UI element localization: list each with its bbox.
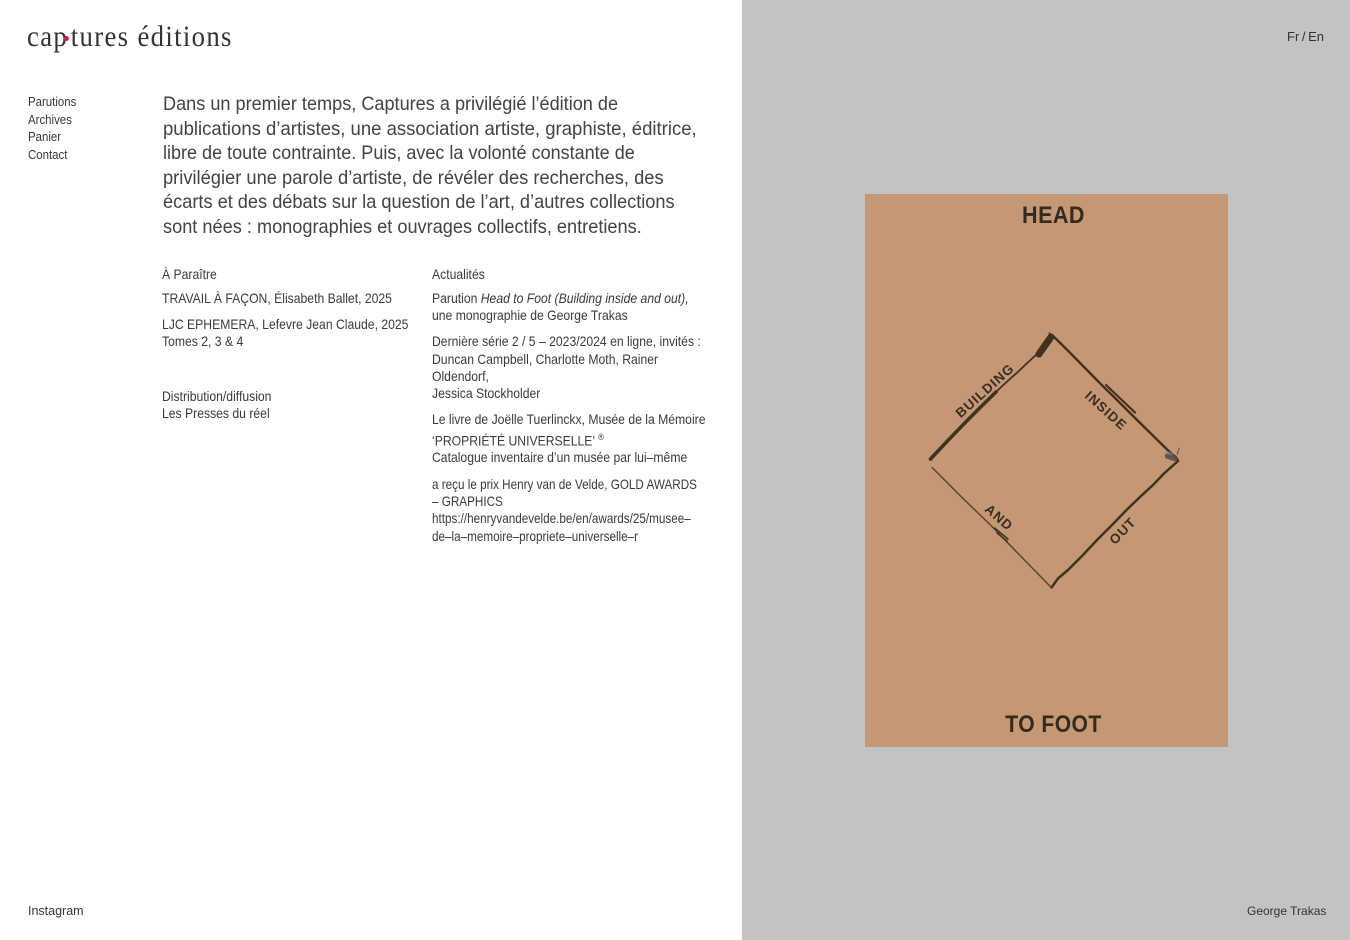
svg-text:AND: AND	[982, 501, 1016, 533]
svg-text:INSIDE: INSIDE	[1082, 388, 1130, 433]
svg-text:OUT: OUT	[1106, 514, 1139, 547]
svg-text:BUILDING: BUILDING	[953, 361, 1017, 421]
